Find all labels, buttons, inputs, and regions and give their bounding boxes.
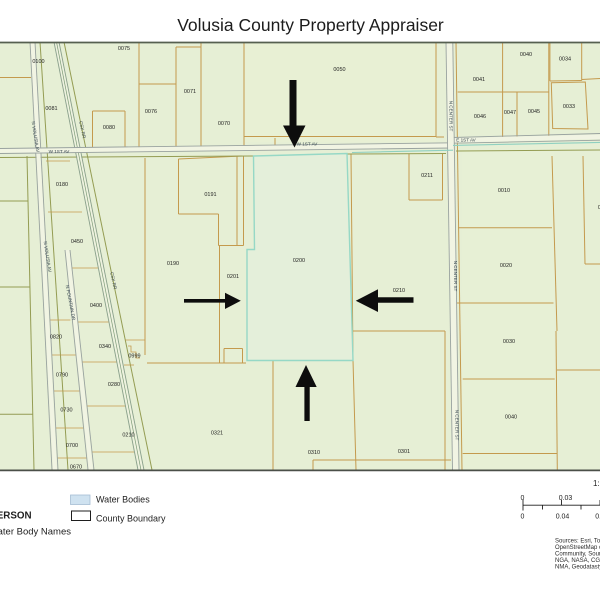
svg-text:0820: 0820 [50, 335, 62, 341]
svg-text:0046: 0046 [474, 114, 486, 120]
svg-text:Sources: Esri, TomTom,: Sources: Esri, TomTom, [555, 539, 600, 545]
svg-text:0: 0 [521, 514, 525, 521]
svg-text:1:2,257: 1:2,257 [593, 479, 600, 488]
svg-text:0020: 0020 [500, 263, 512, 269]
svg-text:N CENTER ST: N CENTER ST [449, 101, 454, 132]
svg-text:Volusia County Property Apprai: Volusia County Property Appraiser [177, 15, 444, 35]
svg-text:0075: 0075 [118, 46, 130, 52]
svg-text:0071: 0071 [184, 89, 196, 95]
svg-text:0: 0 [521, 495, 525, 502]
svg-text:0280: 0280 [108, 382, 120, 388]
svg-text:0191: 0191 [204, 192, 216, 198]
svg-text:0070: 0070 [218, 121, 230, 127]
svg-text:0730: 0730 [60, 408, 72, 414]
svg-text:NGA, NASA, CGIAR, N: NGA, NASA, CGIAR, N [555, 558, 600, 564]
svg-text:0034: 0034 [559, 57, 571, 63]
svg-text:0310: 0310 [308, 450, 320, 456]
svg-text:E 1ST AV: E 1ST AV [456, 137, 476, 142]
svg-text:0700: 0700 [66, 443, 78, 449]
svg-text:0040: 0040 [505, 415, 517, 421]
svg-text:0033: 0033 [563, 104, 575, 110]
svg-text:OpenStreetMap contrib: OpenStreetMap contrib [555, 545, 600, 551]
svg-text:0100: 0100 [32, 59, 44, 65]
svg-text:0400: 0400 [90, 303, 102, 309]
svg-text:N CENTER ST: N CENTER ST [455, 410, 460, 441]
svg-text:NMA, Geodatastyrelsen: NMA, Geodatastyrelsen [555, 565, 600, 571]
svg-text:0041: 0041 [473, 77, 485, 83]
svg-text:County Boundary: County Boundary [96, 514, 166, 524]
svg-text:0080: 0080 [103, 125, 115, 131]
svg-text:0211: 0211 [421, 173, 433, 179]
svg-text:0045: 0045 [528, 109, 540, 115]
svg-text:0210: 0210 [122, 433, 134, 439]
svg-text:0999: 0999 [128, 354, 140, 360]
svg-text:0301: 0301 [398, 449, 410, 455]
svg-text:0450: 0450 [71, 239, 83, 245]
svg-text:N CENTER ST: N CENTER ST [453, 261, 458, 292]
svg-text:0.04: 0.04 [556, 514, 570, 521]
svg-text:0190: 0190 [167, 261, 179, 267]
svg-text:0.03: 0.03 [559, 495, 573, 502]
svg-text:Water Bodies: Water Bodies [96, 495, 150, 505]
svg-text:0180: 0180 [56, 182, 68, 188]
svg-text:0340: 0340 [99, 344, 111, 350]
svg-text:0321: 0321 [211, 431, 223, 437]
svg-text:W 1ST AV: W 1ST AV [49, 149, 71, 154]
svg-text:0050: 0050 [333, 67, 345, 73]
svg-text:0.08: 0.08 [595, 514, 600, 521]
svg-text:W 1ST AV: W 1ST AV [297, 141, 319, 146]
svg-text:0047: 0047 [504, 110, 516, 116]
svg-text:0790: 0790 [56, 373, 68, 379]
svg-text:0210: 0210 [393, 288, 405, 294]
svg-text:0076: 0076 [145, 109, 157, 115]
svg-text:PIERSON: PIERSON [0, 511, 32, 522]
svg-text:0030: 0030 [503, 339, 515, 345]
svg-text:0200: 0200 [293, 258, 305, 264]
svg-text:0010: 0010 [498, 188, 510, 194]
svg-text:0040: 0040 [520, 52, 532, 58]
svg-text:0081: 0081 [45, 106, 57, 112]
svg-text:Community, Sources:: Community, Sources: [555, 552, 600, 558]
svg-text:0201: 0201 [227, 274, 239, 280]
svg-text:Water Body Names: Water Body Names [0, 527, 71, 538]
